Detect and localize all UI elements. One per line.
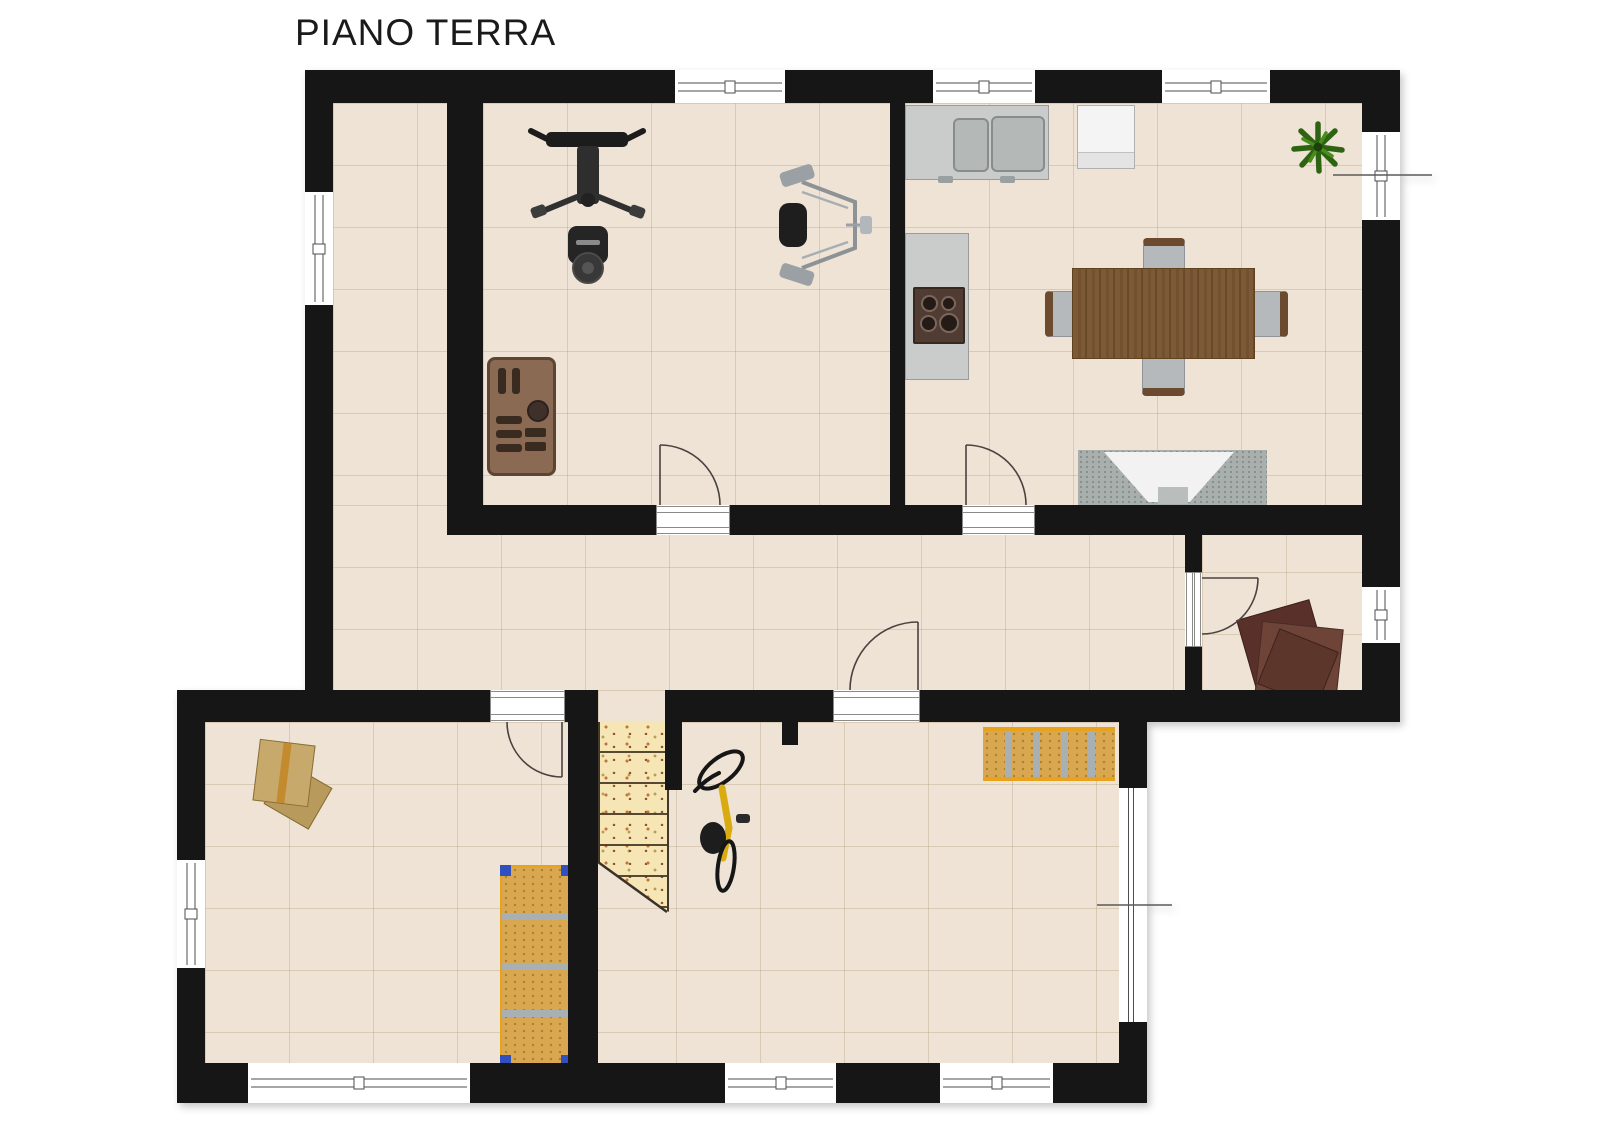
- window-bottom-left-room-left: [177, 860, 205, 968]
- door-opening-kitchen: [962, 505, 1035, 535]
- window-kitchen-top-right: [1162, 70, 1270, 103]
- shelf-divider: [1088, 731, 1095, 777]
- cardboard-box-1: [252, 739, 315, 807]
- floor-hallway-vertical: [333, 103, 447, 535]
- storage-shelf-vertical: [500, 865, 572, 1066]
- window-bottom-right-room-bottom-left: [725, 1063, 836, 1103]
- box-tape: [276, 743, 291, 804]
- window-kitchen-right: [1362, 132, 1400, 220]
- dumbbell: [496, 416, 522, 424]
- window-bottom-left-room-bottom: [248, 1063, 470, 1103]
- window-kitchen-top-left: [933, 70, 1035, 103]
- shelf-divider: [1061, 731, 1068, 777]
- dumbbell: [496, 444, 522, 452]
- storage-shelf-horizontal: [983, 727, 1115, 781]
- tv-stand: [1158, 487, 1188, 504]
- sink-basin-left: [953, 118, 989, 172]
- wall-bottom-rooms-divider: [568, 690, 598, 1103]
- dumbbell: [496, 430, 522, 438]
- dining-chair-bottom: [1142, 355, 1185, 396]
- shelf-divider: [1005, 731, 1012, 777]
- door-opening-bottom-right-room: [833, 690, 920, 722]
- wall-mid-horizontal: [447, 505, 1400, 535]
- stove: [913, 287, 965, 344]
- appliance-front: [1078, 152, 1134, 168]
- wall-bottom-right-exterior-right-lower: [1119, 1022, 1147, 1103]
- wall-bottom-rooms-top-right: [665, 690, 1400, 722]
- shelf-divider: [502, 963, 570, 970]
- weight-bar: [525, 428, 546, 437]
- wall-stub: [782, 722, 798, 745]
- dumbbell: [512, 368, 520, 394]
- shelf-divider: [502, 1010, 570, 1017]
- window-gym-top: [675, 70, 785, 103]
- weight-bar: [525, 442, 546, 451]
- wall-bottom-right-exterior-bottom: [568, 1063, 1147, 1103]
- floor-plan: [0, 0, 1600, 1132]
- wall-gym-kitchen-partition: [890, 103, 905, 505]
- glass-door-bottom-right-room: [1119, 788, 1147, 1022]
- wall-bottom-right-exterior-right-upper: [1119, 722, 1147, 788]
- dining-table: [1072, 268, 1255, 359]
- shelf-divider: [1033, 731, 1040, 777]
- dumbbell: [498, 368, 506, 394]
- burner: [920, 315, 937, 332]
- floor-stair-landing: [598, 690, 665, 722]
- door-opening-small-room: [1185, 572, 1202, 647]
- window-bottom-right-room-bottom-right: [940, 1063, 1053, 1103]
- shelf-divider: [502, 913, 570, 920]
- wall-gym-left: [447, 103, 483, 535]
- kitchen-counter: [905, 105, 1049, 180]
- faucet-icon: [1000, 176, 1015, 183]
- burner: [921, 295, 938, 312]
- shelf-corner: [500, 865, 511, 876]
- dumbbell-rack: [487, 357, 556, 476]
- sink-basin-right: [991, 116, 1045, 172]
- kitchen-appliance: [1077, 105, 1135, 169]
- burner: [941, 296, 956, 311]
- door-opening-bottom-left-room: [490, 690, 565, 722]
- weight-plate: [527, 400, 549, 422]
- wall-stair-right: [665, 722, 682, 790]
- window-hallway-left: [305, 192, 333, 305]
- faucet-icon: [938, 176, 953, 183]
- burner: [939, 313, 959, 333]
- door-opening-gym: [656, 505, 730, 535]
- window-small-room-right: [1362, 587, 1400, 643]
